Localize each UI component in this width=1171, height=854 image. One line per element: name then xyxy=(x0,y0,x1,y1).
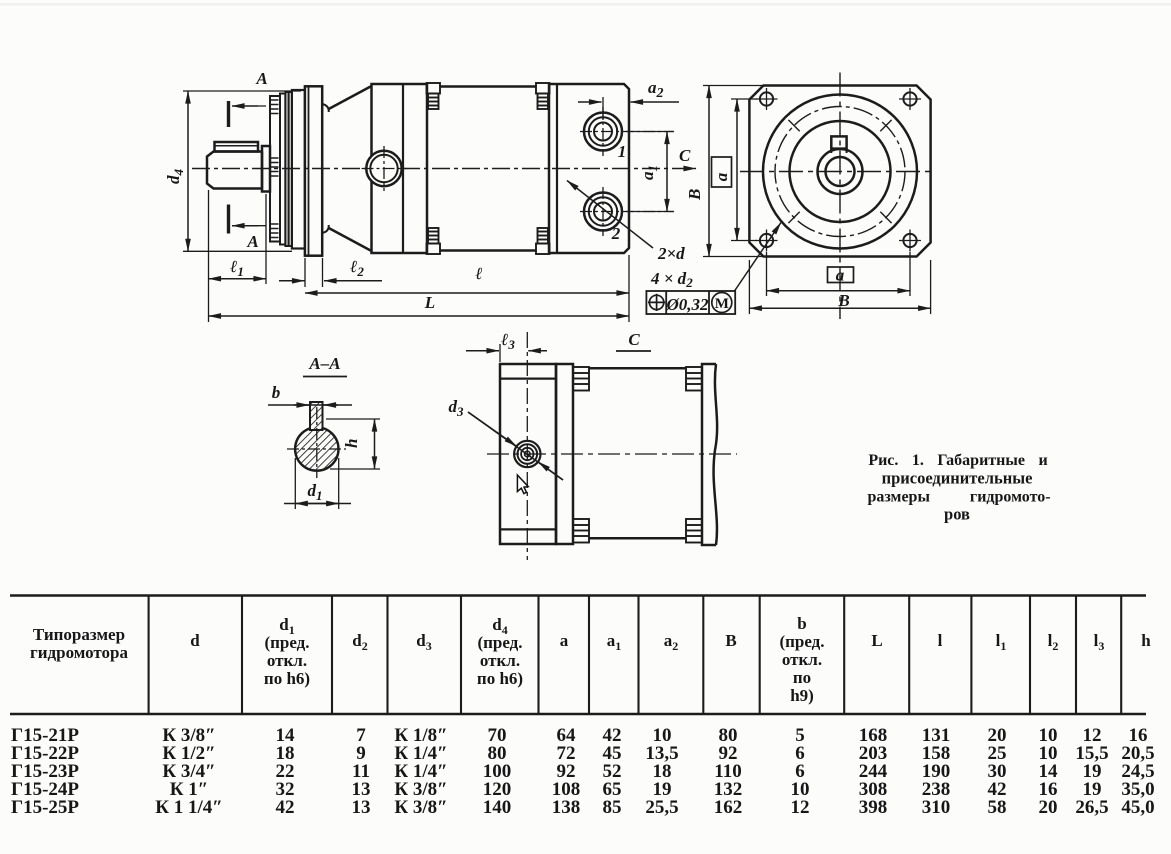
svg-text:Рис. 1. Габаритные и: Рис. 1. Габаритные и xyxy=(868,452,1047,469)
svg-text:ℓ2: ℓ2 xyxy=(350,257,364,279)
svg-text:a: a xyxy=(836,266,845,285)
svg-text:Г15-25Р: Г15-25Р xyxy=(11,797,79,818)
svg-text:58: 58 xyxy=(988,797,1007,818)
svg-text:a2: a2 xyxy=(648,78,664,101)
svg-text:a1: a1 xyxy=(607,631,622,653)
svg-text:B: B xyxy=(725,631,736,650)
svg-text:45,0: 45,0 xyxy=(1121,797,1154,818)
svg-text:К 3/8″: К 3/8″ xyxy=(394,797,447,818)
svg-text:2: 2 xyxy=(611,224,621,243)
svg-text:d1(пред.откл.по h6): d1(пред.откл.по h6) xyxy=(264,615,310,688)
svg-text:d: d xyxy=(190,631,200,650)
svg-text:B: B xyxy=(837,291,849,310)
svg-text:C: C xyxy=(679,146,691,165)
svg-text:398: 398 xyxy=(859,797,888,818)
svg-text:ров: ров xyxy=(944,505,970,524)
svg-text:A: A xyxy=(246,232,258,251)
svg-text:размеры гидромото-: размеры гидромото- xyxy=(867,489,1050,506)
svg-text:d3: d3 xyxy=(416,631,431,653)
svg-text:B: B xyxy=(685,189,704,201)
svg-text:d4: d4 xyxy=(164,169,186,185)
svg-text:a1: a1 xyxy=(638,165,660,180)
svg-text:25,5: 25,5 xyxy=(645,797,678,818)
svg-text:ℓ: ℓ xyxy=(475,264,482,283)
svg-text:310: 310 xyxy=(922,797,951,818)
svg-text:d4(пред.откл.по h6): d4(пред.откл.по h6) xyxy=(477,615,523,688)
svg-text:C: C xyxy=(628,330,640,349)
svg-text:162: 162 xyxy=(714,797,743,818)
svg-text:d2: d2 xyxy=(352,631,367,653)
svg-text:L: L xyxy=(871,631,882,650)
svg-text:a: a xyxy=(712,172,731,181)
svg-text:4 × d2: 4 × d2 xyxy=(650,269,693,290)
svg-text:присоединительные: присоединительные xyxy=(882,469,1033,488)
svg-text:ℓ3: ℓ3 xyxy=(501,330,515,352)
svg-text:Ø0,32: Ø0,32 xyxy=(665,295,709,314)
svg-text:Типоразмергидромотора: Типоразмергидромотора xyxy=(30,625,128,662)
svg-text:a2: a2 xyxy=(664,631,679,653)
svg-text:20: 20 xyxy=(1039,797,1058,818)
svg-text:138: 138 xyxy=(552,797,581,818)
svg-text:l1: l1 xyxy=(996,631,1007,653)
svg-text:h: h xyxy=(342,439,361,448)
svg-text:a: a xyxy=(560,631,569,650)
svg-text:12: 12 xyxy=(791,797,810,818)
svg-text:A: A xyxy=(255,69,267,88)
svg-text:1: 1 xyxy=(618,142,627,161)
svg-text:A–A: A–A xyxy=(308,354,340,373)
svg-text:L: L xyxy=(424,293,435,312)
svg-text:d3: d3 xyxy=(449,397,465,419)
svg-text:b: b xyxy=(272,383,281,402)
svg-text:l3: l3 xyxy=(1094,631,1105,653)
svg-text:М: М xyxy=(715,296,729,312)
svg-text:42: 42 xyxy=(276,797,295,818)
svg-text:26,5: 26,5 xyxy=(1075,797,1108,818)
svg-text:d1: d1 xyxy=(308,481,323,503)
svg-text:К 1 1/4″: К 1 1/4″ xyxy=(155,797,223,818)
svg-text:l2: l2 xyxy=(1048,631,1059,653)
svg-text:13: 13 xyxy=(352,797,371,818)
svg-text:h: h xyxy=(1141,631,1151,650)
svg-text:2×d: 2×d xyxy=(657,244,685,263)
svg-text:l: l xyxy=(938,631,943,650)
svg-text:85: 85 xyxy=(603,797,622,818)
svg-text:140: 140 xyxy=(483,797,512,818)
svg-text:ℓ1: ℓ1 xyxy=(230,257,244,279)
svg-text:b(пред.откл.поh9): b(пред.откл.поh9) xyxy=(779,614,824,705)
